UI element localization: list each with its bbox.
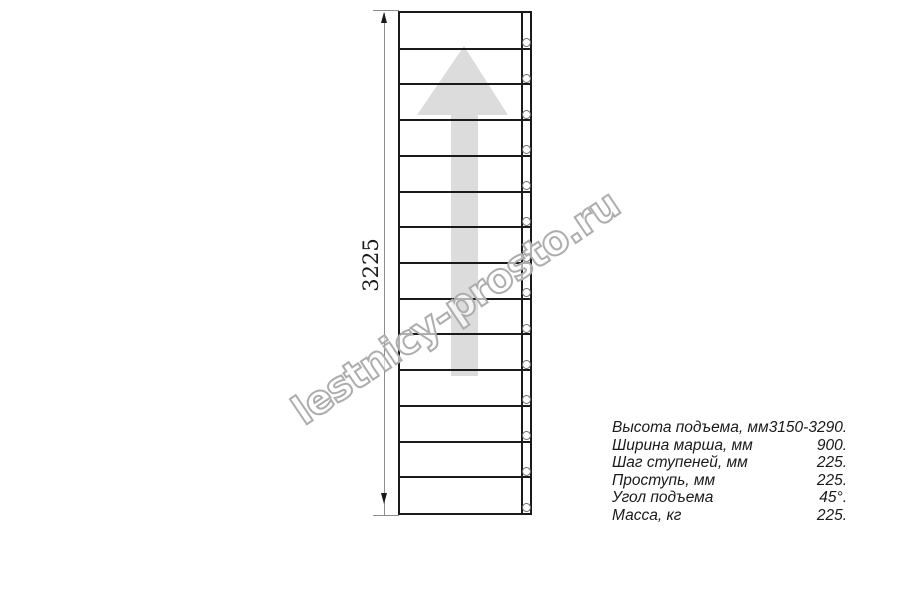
spec-value: 3150-3290. (769, 419, 847, 437)
spec-label: Угол подъема (612, 489, 713, 507)
bolt-circle (522, 74, 531, 83)
spec-row-mass: Масса, кг 225. (612, 507, 847, 525)
spec-row-angle: Угол подъема 45°. (612, 489, 847, 507)
tread-line (400, 262, 530, 264)
specs-table: Высота подъема, мм 3150-3290. Ширина мар… (612, 419, 847, 524)
extension-line-top (373, 10, 399, 11)
dimension-arrowhead-top (381, 12, 387, 23)
bolt-circle (522, 395, 531, 404)
staircase (398, 11, 532, 515)
extension-line-bottom (373, 515, 399, 516)
tread-line (400, 191, 530, 193)
tread-line (400, 298, 530, 300)
dimension-line (384, 13, 385, 515)
dimension-arrowhead-bottom (381, 493, 387, 504)
bolt-circle (522, 503, 531, 512)
bolt-circle (522, 431, 531, 440)
spec-label: Шаг ступеней, мм (612, 454, 748, 472)
spec-label: Ширина марша, мм (612, 437, 753, 455)
tread-line (400, 83, 530, 85)
bolt-circle (522, 324, 531, 333)
spec-row-step: Шаг ступеней, мм 225. (612, 454, 847, 472)
bolt-circle (522, 360, 531, 369)
bolt-circle (522, 38, 531, 47)
tread-line (400, 405, 530, 407)
dimension-label: 3225 (359, 238, 383, 291)
tread-line (400, 333, 530, 335)
spec-label: Высота подъема, мм (612, 419, 769, 437)
spec-row-width: Ширина марша, мм 900. (612, 437, 847, 455)
spec-row-height: Высота подъема, мм 3150-3290. (612, 419, 847, 437)
spec-value: 45°. (819, 489, 847, 507)
tread-line (400, 119, 530, 121)
tread-line (400, 369, 530, 371)
spec-value: 225. (817, 472, 847, 490)
tread-line (400, 476, 530, 478)
tread-line (400, 155, 530, 157)
spec-value: 225. (817, 507, 847, 525)
bolt-circle (522, 217, 531, 226)
bolt-circle (522, 288, 531, 297)
bolt-circle (522, 110, 531, 119)
bolt-circle (522, 253, 531, 262)
stair-drawing-canvas: 3225 lestnicy-prosto.ru Высота подъема, … (0, 0, 900, 600)
bolt-circle (522, 145, 531, 154)
spec-label: Проступь, мм (612, 472, 715, 490)
spec-label: Масса, кг (612, 507, 681, 525)
spec-row-tread: Проступь, мм 225. (612, 472, 847, 490)
tread-line (400, 48, 530, 50)
bolt-circle (522, 181, 531, 190)
spec-value: 900. (817, 437, 847, 455)
bolt-circle (522, 467, 531, 476)
spec-value: 225. (817, 454, 847, 472)
tread-line (400, 226, 530, 228)
tread-line (400, 441, 530, 443)
